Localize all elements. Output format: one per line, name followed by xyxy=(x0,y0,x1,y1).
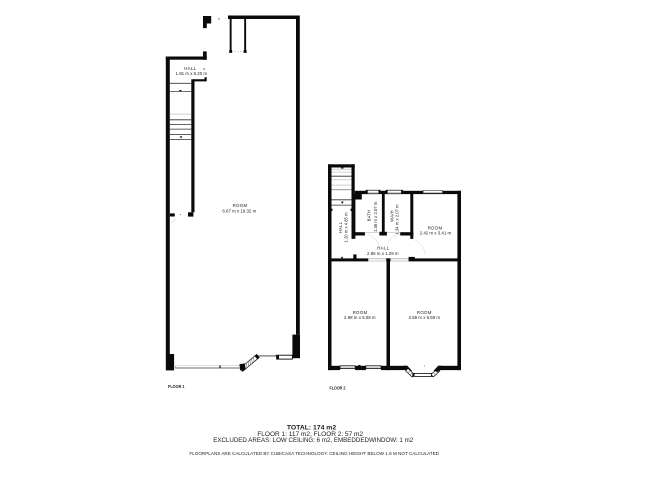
svg-text:HALL: HALL xyxy=(377,245,389,250)
svg-text:EXCLUDED AREAS: LOW CEILING: 6: EXCLUDED AREAS: LOW CEILING: 6 m2, EMBED… xyxy=(213,437,414,444)
svg-text:1.20 m x 4.85 m: 1.20 m x 4.85 m xyxy=(343,212,348,243)
svg-text:1.91 m x 6.20 m: 1.91 m x 6.20 m xyxy=(176,71,208,76)
svg-text:FLOOR 1: FLOOR 1 xyxy=(168,384,185,389)
svg-text:FLOORPLANS ARE CALCULATED BY C: FLOORPLANS ARE CALCULATED BY CUBICASA TE… xyxy=(189,451,439,456)
svg-text:2.98 m x 5.08 m: 2.98 m x 5.08 m xyxy=(344,315,376,320)
svg-text:1.34 m x 2.07 m: 1.34 m x 2.07 m xyxy=(395,204,400,235)
svg-text:2.85 m x 1.29 m: 2.85 m x 1.29 m xyxy=(367,251,399,256)
svg-text:1.46 m x 2.07 m: 1.46 m x 2.07 m xyxy=(373,201,378,232)
svg-text:FLOOR 2: FLOOR 2 xyxy=(330,385,346,390)
svg-text:6.67 m x 19.32 m: 6.67 m x 19.32 m xyxy=(222,208,256,213)
svg-text:2.42 m x 3.41 m: 2.42 m x 3.41 m xyxy=(420,230,452,235)
svg-text:3.59 m x 5.59 m: 3.59 m x 5.59 m xyxy=(409,315,441,320)
svg-text:BATH: BATH xyxy=(367,210,372,222)
svg-text:HALL: HALL xyxy=(338,221,343,233)
